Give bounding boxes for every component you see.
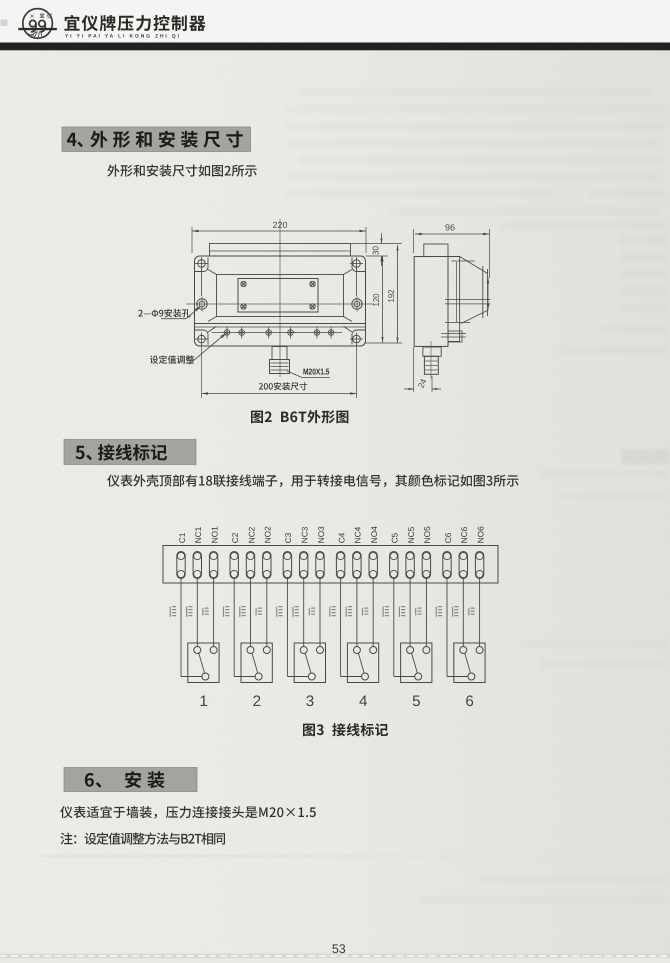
svg-text:NC1: NC1 [193, 526, 203, 543]
svg-text:2: 2 [253, 693, 261, 710]
svg-text:4: 4 [359, 693, 367, 710]
svg-text:96: 96 [445, 223, 455, 233]
svg-text:NO4: NO4 [369, 526, 379, 543]
svg-text:3: 3 [306, 693, 314, 710]
svg-text:C1: C1 [177, 532, 187, 543]
svg-text:NO3: NO3 [316, 526, 326, 543]
svg-text:NC5: NC5 [406, 526, 416, 543]
svg-text:NO1: NO1 [209, 526, 219, 543]
svg-text:M20X1.5: M20X1.5 [303, 367, 330, 377]
svg-text:C6: C6 [443, 532, 453, 543]
svg-text:220: 220 [273, 220, 288, 230]
svg-text:NO2: NO2 [263, 526, 273, 543]
svg-text:6: 6 [465, 693, 473, 710]
svg-text:YI YI PAI YA LI KONG ZHI QI: YI YI PAI YA LI KONG ZHI QI [65, 33, 181, 39]
svg-text:C5: C5 [390, 532, 400, 543]
svg-text:5: 5 [412, 693, 420, 710]
svg-text:NC4: NC4 [353, 526, 363, 543]
svg-text:C3: C3 [283, 532, 293, 543]
svg-text:C4: C4 [336, 532, 346, 543]
svg-text:NC6: NC6 [459, 526, 469, 543]
svg-text:NO5: NO5 [422, 526, 432, 543]
svg-text:C2: C2 [230, 532, 240, 543]
svg-text:NO6: NO6 [475, 526, 485, 543]
svg-text:NC2: NC2 [246, 526, 256, 543]
svg-text:30: 30 [371, 246, 381, 255]
svg-text:NC3: NC3 [300, 526, 310, 543]
svg-text:120: 120 [371, 293, 381, 306]
svg-text:1: 1 [199, 693, 207, 710]
svg-text:192: 192 [386, 289, 396, 302]
